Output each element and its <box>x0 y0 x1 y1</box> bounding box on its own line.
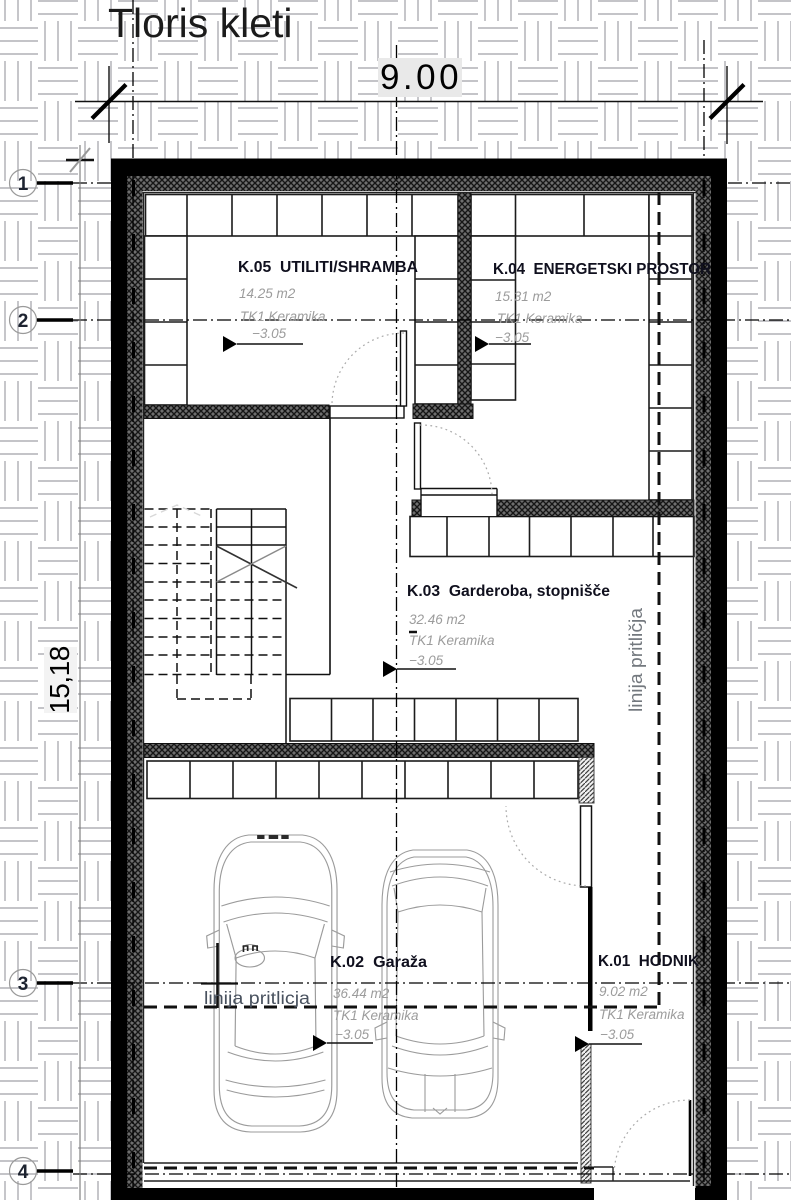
svg-text:K.01 HODNIK: K.01 HODNIK <box>598 953 700 970</box>
svg-text:9.02 m2: 9.02 m2 <box>599 984 648 999</box>
svg-text:K.04 ENERGETSKI PROSTOR: K.04 ENERGETSKI PROSTOR <box>493 261 711 278</box>
svg-text:K.03 Garderoba, stopnišče: K.03 Garderoba, stopnišče <box>407 583 610 600</box>
svg-text:15.31 m2: 15.31 m2 <box>495 289 552 304</box>
svg-text:−3.05: −3.05 <box>600 1027 635 1042</box>
svg-text:1: 1 <box>18 174 29 195</box>
svg-text:36.44 m2: 36.44 m2 <box>333 986 390 1001</box>
svg-text:linija pritličja: linija pritličja <box>626 607 646 712</box>
svg-text:TK1 Keramika: TK1 Keramika <box>333 1008 419 1023</box>
svg-text:TK1 Keramika: TK1 Keramika <box>240 309 326 324</box>
svg-text:TK1 Keramika: TK1 Keramika <box>497 311 583 326</box>
svg-text:9.00: 9.00 <box>380 58 462 97</box>
svg-text:TK1 Keramika: TK1 Keramika <box>409 633 495 648</box>
svg-text:K.02 Garaža: K.02 Garaža <box>330 954 427 971</box>
svg-text:−3.05: −3.05 <box>335 1027 370 1042</box>
svg-text:4: 4 <box>18 1162 29 1183</box>
svg-text:linija pritlicja: linija pritlicja <box>204 988 310 1008</box>
svg-text:−3.05: −3.05 <box>252 326 287 341</box>
svg-text:Tloris kleti: Tloris kleti <box>108 0 293 46</box>
svg-text:32.46 m2: 32.46 m2 <box>409 612 466 627</box>
svg-text:15,18: 15,18 <box>44 646 75 714</box>
svg-text:−3.05: −3.05 <box>495 330 530 345</box>
svg-text:K.05 UTILITI/SHRAMBA: K.05 UTILITI/SHRAMBA <box>238 259 418 276</box>
svg-text:3: 3 <box>18 974 29 995</box>
svg-text:TK1 Keramika: TK1 Keramika <box>599 1007 685 1022</box>
svg-text:2: 2 <box>18 311 29 332</box>
svg-text:14.25 m2: 14.25 m2 <box>239 286 296 301</box>
svg-text:−3.05: −3.05 <box>409 653 444 668</box>
